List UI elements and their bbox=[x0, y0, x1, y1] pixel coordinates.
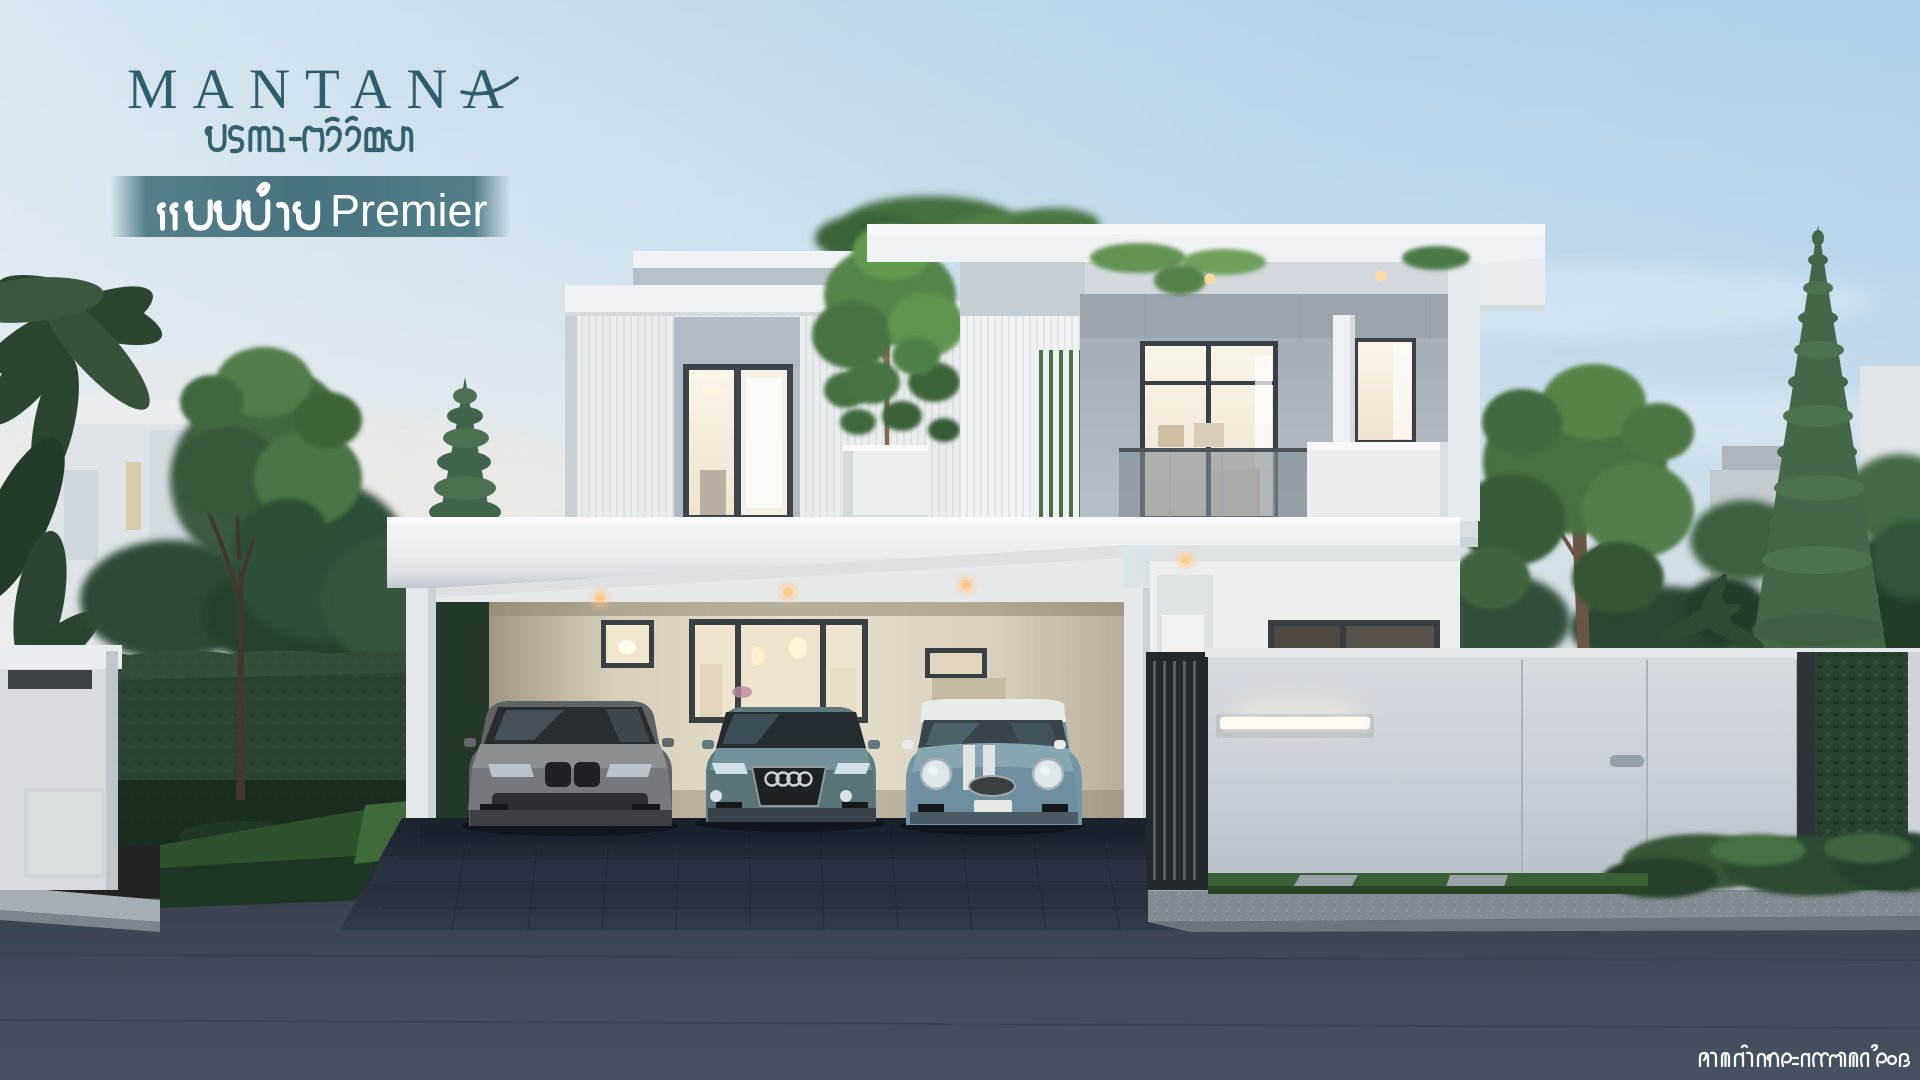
svg-text:Premier: Premier bbox=[330, 185, 488, 236]
svg-text:MANTANA: MANTANA bbox=[127, 58, 519, 121]
